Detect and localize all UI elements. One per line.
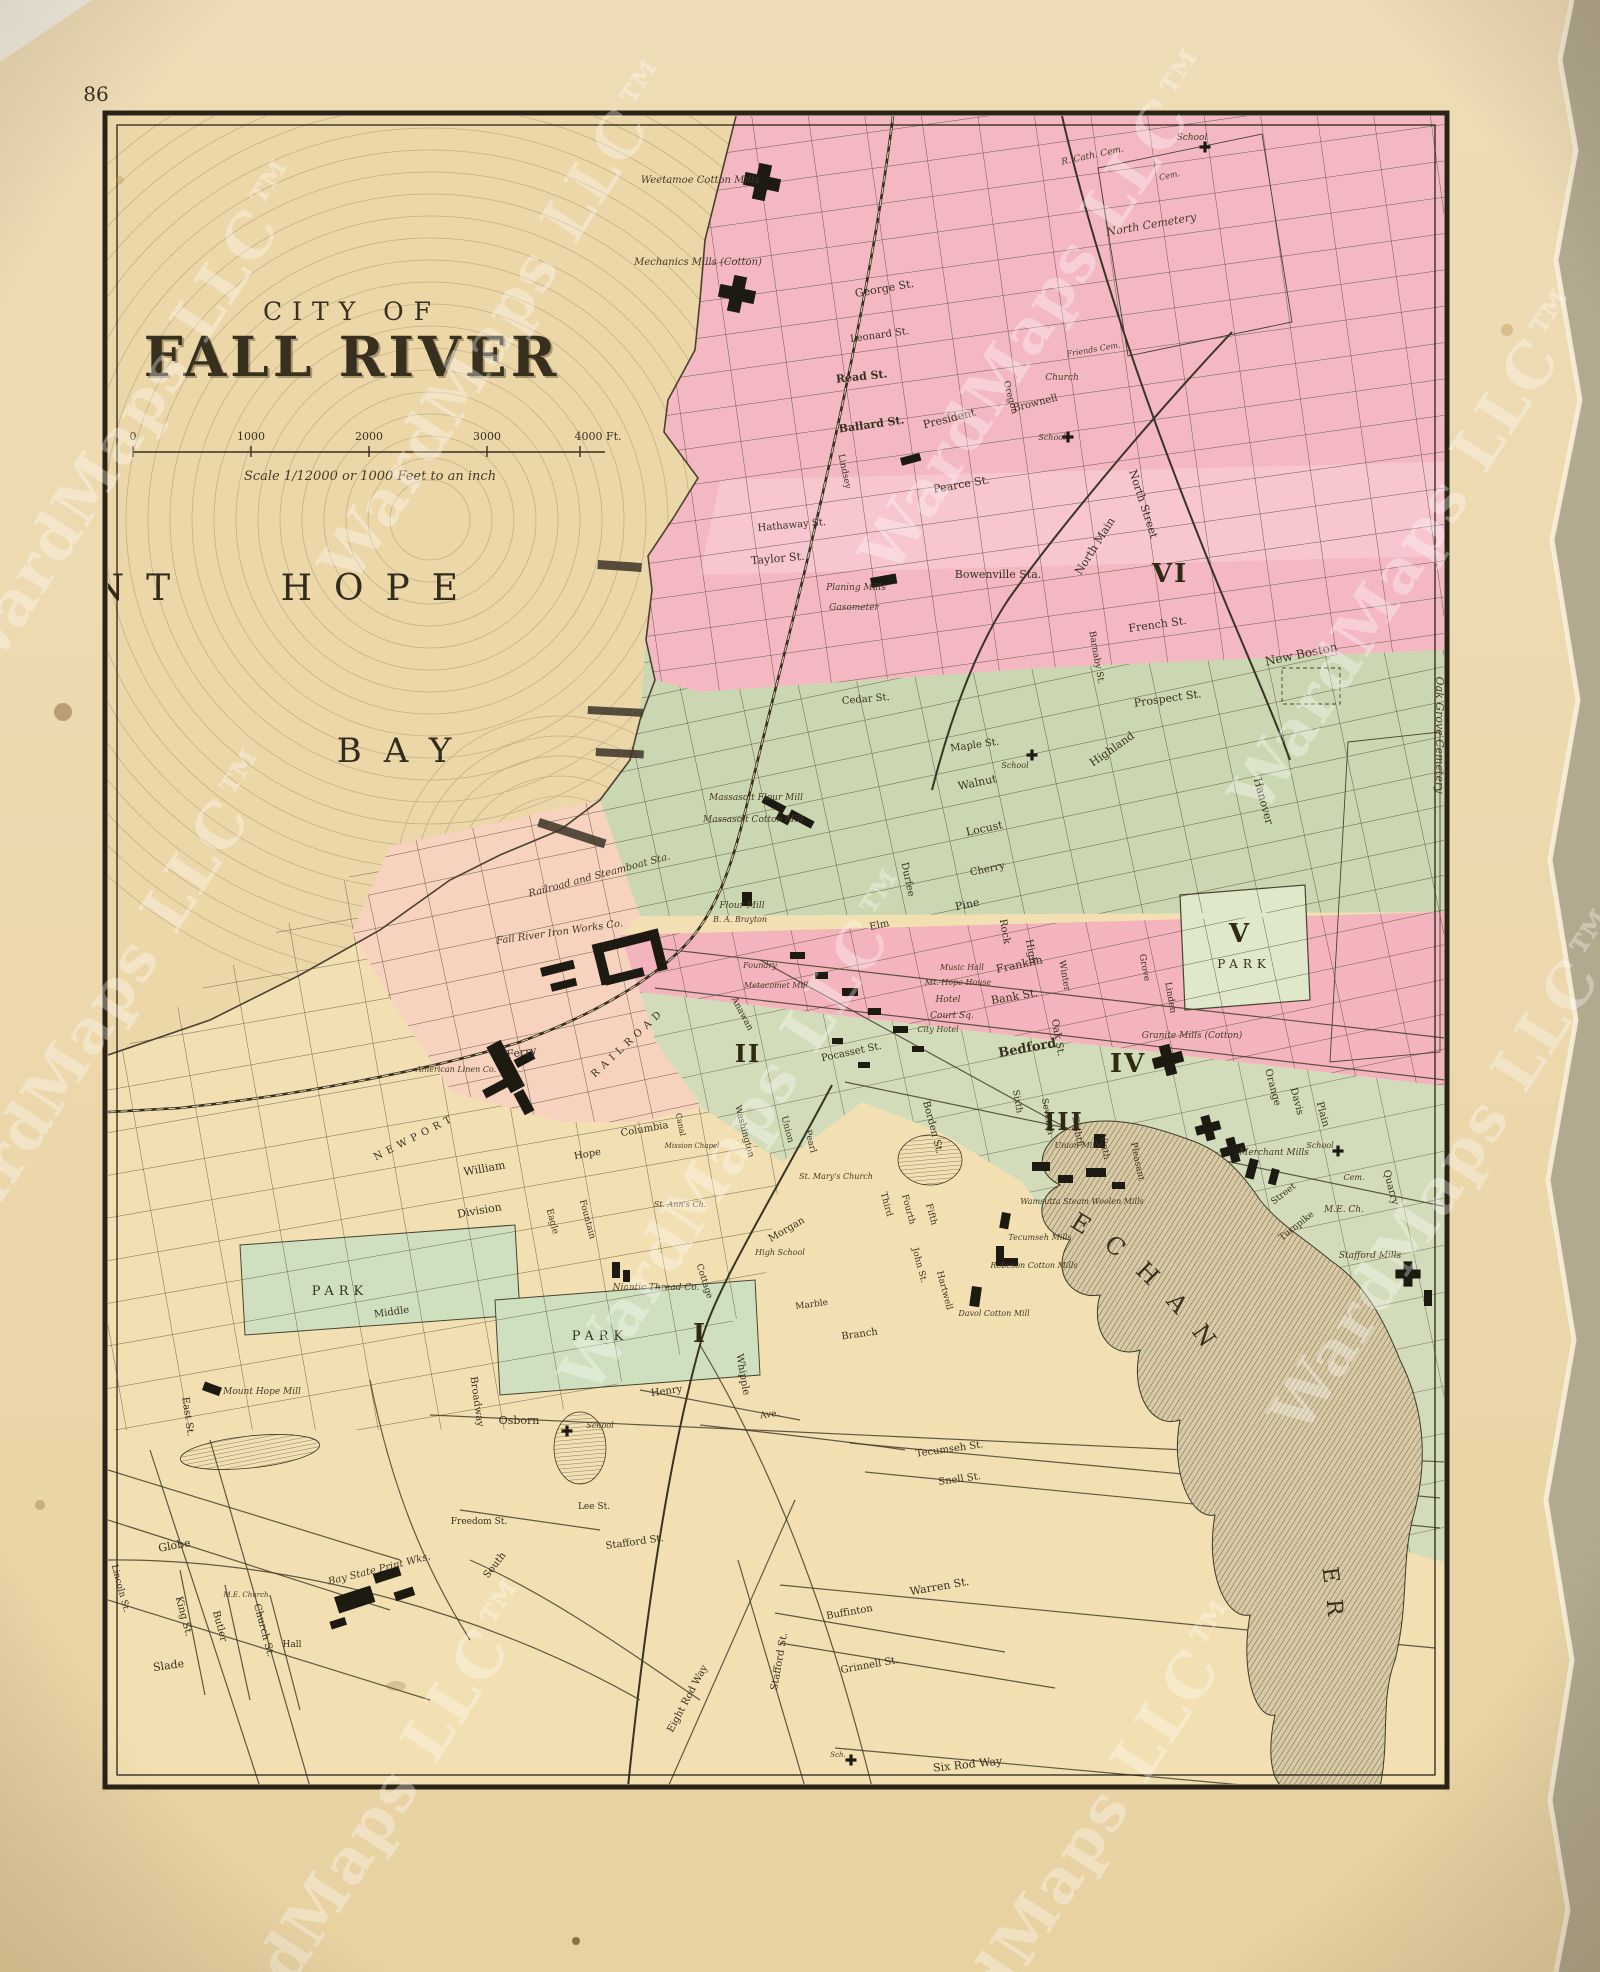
scanned-atlas-page: NEW BEDFORD [0, 0, 1600, 1972]
scan-vignette [0, 0, 1600, 1972]
map-canvas: NEW BEDFORD [0, 0, 1600, 1972]
